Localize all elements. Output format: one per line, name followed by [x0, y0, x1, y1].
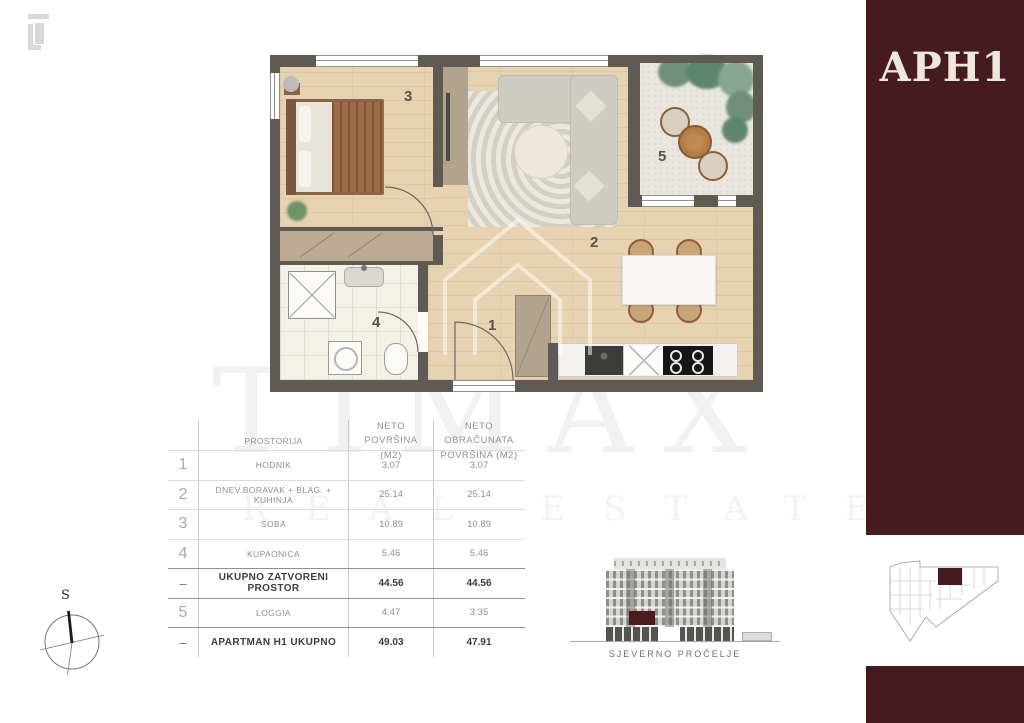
timax-logo-icon [28, 14, 50, 54]
shower-cross [290, 273, 334, 317]
table-row: 2 DNEV.BORAVAK + BLAG. + KUHINJA 25.14 2… [168, 480, 525, 510]
floor-plan: 1 2 3 4 5 [270, 55, 763, 392]
table-header: PROSTORIJA NETO POVRŠINA (M2) NETO OBRAČ… [168, 420, 525, 450]
compass-needle [69, 611, 73, 643]
elevation-caption: SJEVERNO PROČELJE [570, 649, 780, 659]
compass-rose [34, 602, 110, 680]
ground-line [570, 641, 780, 642]
bathroom-door-arc [378, 312, 418, 352]
table-row: 1 HODNIK 3.07 3.07 [168, 450, 525, 480]
building-elevation: SJEVERNO PROČELJE [570, 556, 780, 666]
unit-title: APH1 [866, 44, 1024, 91]
area-table: PROSTORIJA NETO POVRŠINA (M2) NETO OBRAČ… [168, 420, 525, 657]
wardrobe-doors [300, 233, 382, 257]
facade-column [665, 569, 674, 627]
room-label-5: 5 [658, 148, 666, 165]
annex [742, 632, 772, 641]
table-row: 3 SOBA 10.89 10.89 [168, 509, 525, 539]
closet-door [517, 297, 549, 375]
house-watermark-icon [445, 220, 590, 355]
room-label-4: 4 [372, 314, 380, 331]
facade-column [703, 569, 712, 627]
highlighted-unit [938, 568, 962, 585]
compass: S [34, 588, 110, 684]
table-row-total-closed: – UKUPNO ZATVORENI PROSTOR 44.56 44.56 [168, 568, 525, 598]
room-label-3: 3 [404, 88, 412, 105]
site-plan [886, 555, 1004, 647]
table-row: 4 KUPAONICA 5.46 5.46 [168, 539, 525, 569]
room-label-1: 1 [488, 317, 496, 334]
table-row: 5 LOGGIA 4.47 3.35 [168, 598, 525, 628]
bedroom-door-arc [385, 187, 433, 235]
room-label-2: 2 [590, 234, 598, 251]
north-label: S [61, 588, 70, 603]
entrance-door-arc [455, 322, 513, 380]
table-row-total-apartment: – APARTMAN H1 UKUPNO 49.03 47.91 [168, 627, 525, 657]
ground-floor-passage [658, 627, 680, 641]
plan-overlay [270, 55, 763, 392]
highlighted-apartment [629, 611, 655, 625]
site-plan-panel [866, 535, 1024, 666]
brochure-page: TIMAX REAL ESTATE [0, 0, 1024, 723]
